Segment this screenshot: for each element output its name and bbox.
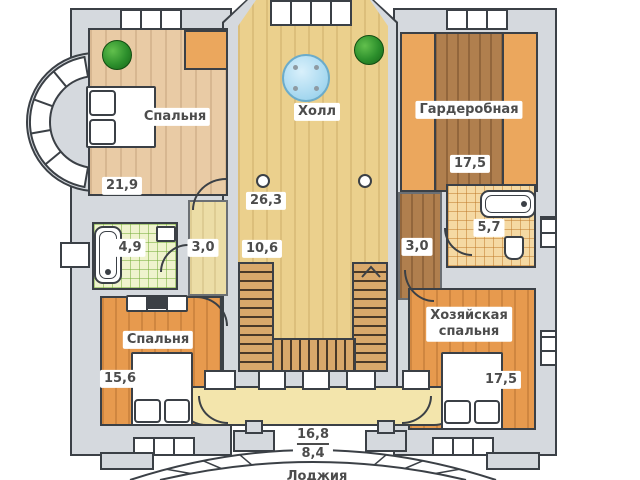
window-right-master — [540, 330, 557, 366]
bedroom1-corner-cabinet — [184, 30, 228, 70]
loggia-area-usable: 8,4 — [297, 446, 329, 461]
master-label-line1: Хозяйская — [430, 308, 508, 323]
window-left-bath — [60, 242, 90, 268]
stair-direction-arrow-icon — [358, 262, 384, 280]
room-label-bedroom1: Спальня — [140, 108, 210, 126]
loggia-door-panel — [204, 370, 236, 390]
fraction-bar — [297, 443, 329, 445]
floor-plan: Спальня 21,9 Холл 26,3 Гардеробная 17,5 … — [0, 0, 640, 480]
area-label-bedroom1: 21,9 — [102, 177, 142, 195]
bathtub-right — [480, 190, 536, 218]
plant-icon — [102, 40, 132, 70]
tv-icon — [146, 297, 168, 309]
area-label-wardrobe: 17,5 — [450, 155, 490, 173]
plant-icon — [354, 35, 384, 65]
sink-left-bath — [156, 226, 176, 242]
loggia-door-panel — [258, 370, 286, 390]
loggia-area-fraction: 16,8 8,4 — [293, 427, 333, 461]
area-label-corridor-left: 3,0 — [187, 239, 218, 257]
window-right-bath — [540, 216, 557, 248]
pillow — [134, 399, 161, 423]
room-label-hall: Холл — [294, 103, 340, 121]
room-label-wardrobe: Гардеробная — [415, 101, 522, 119]
loggia-pier-right-cap — [377, 420, 395, 434]
room-label-loggia: Лоджия — [283, 468, 352, 480]
stair-flight-left — [238, 262, 274, 372]
area-label-hall: 26,3 — [246, 192, 286, 210]
loggia-pier-left-cap — [245, 420, 263, 434]
toilet-icon — [504, 236, 524, 260]
column-hall-left — [256, 174, 270, 188]
area-label-bath-left: 4,9 — [114, 239, 145, 257]
loggia-door-panel — [402, 370, 430, 390]
window-top-wardrobe — [446, 9, 508, 30]
area-label-bedroom2: 15,6 — [100, 370, 140, 388]
pillow — [474, 400, 500, 424]
loggia-door-panel — [346, 370, 376, 390]
room-label-master-bedroom: Хозяйская спальня — [426, 307, 512, 342]
room-label-bedroom2: Спальня — [123, 331, 193, 349]
loggia-door-panel — [302, 370, 330, 390]
column-hall-right — [358, 174, 372, 188]
area-label-stairs: 10,6 — [242, 240, 282, 258]
pillow — [164, 399, 190, 423]
pillow — [89, 90, 116, 116]
round-table-hall — [282, 54, 330, 102]
window-top-hall — [270, 0, 352, 26]
stair-flight-bottom — [272, 338, 356, 372]
window-top-bedroom1 — [120, 9, 182, 30]
pillow — [444, 400, 471, 424]
area-label-master-bedroom: 17,5 — [481, 371, 521, 389]
area-label-corridor-right: 3,0 — [401, 238, 432, 256]
loggia-area-total: 16,8 — [297, 427, 329, 442]
pillow — [89, 119, 116, 145]
area-label-bath-right: 5,7 — [473, 219, 504, 237]
master-label-line2: спальня — [439, 324, 500, 339]
